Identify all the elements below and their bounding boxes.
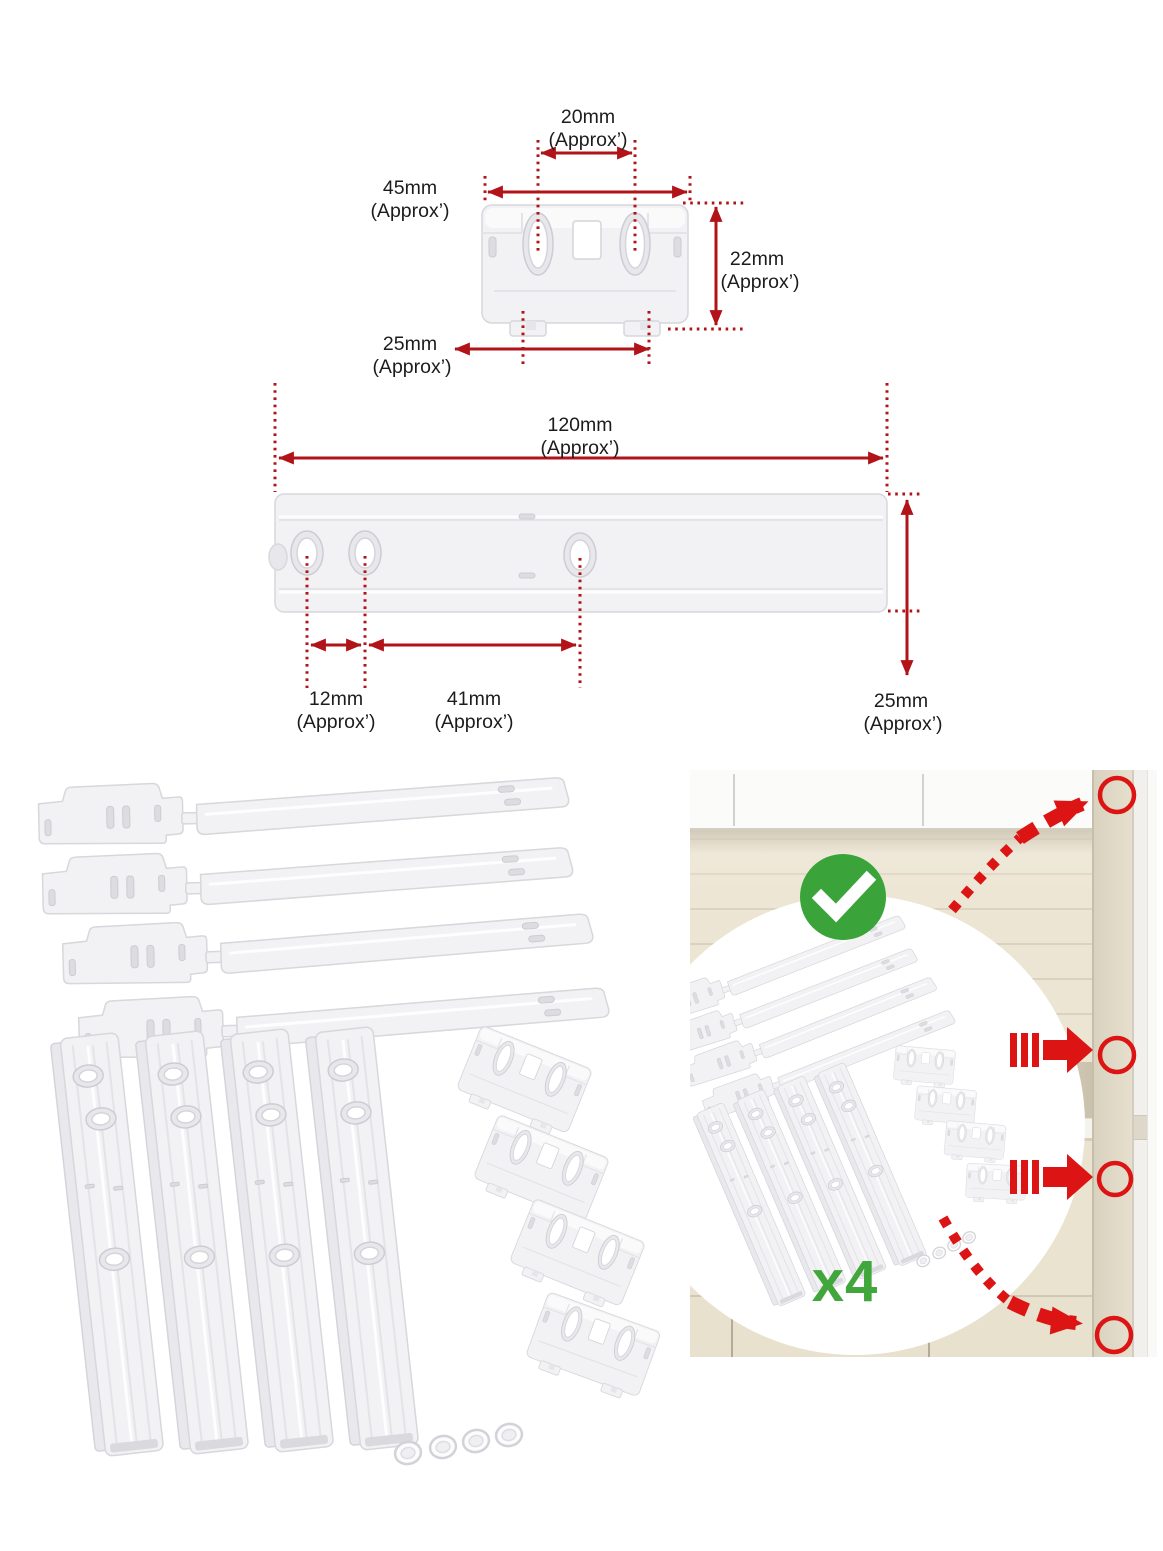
dim-value: 12mm xyxy=(309,688,363,710)
rail-dimension-diagram: 120mm (Approx’) 12mm (Approx’) 41mm (App… xyxy=(269,383,943,735)
curved-arrow-icon xyxy=(952,804,1082,910)
product-dimension-sheet: 20mm (Approx’) 45mm (Approx’) 22mm (Appr… xyxy=(0,0,1163,1551)
dim-value: 20mm xyxy=(561,106,615,128)
dim-approx: (Approx’) xyxy=(540,437,619,459)
dim-value: 120mm xyxy=(547,414,612,436)
corner-marker-circle xyxy=(1099,1163,1131,1195)
dim-value: 25mm xyxy=(383,333,437,355)
straight-arrow-icon xyxy=(1010,1027,1093,1073)
dim-approx: (Approx’) xyxy=(863,713,942,735)
bracket-dimension-diagram: 20mm (Approx’) 45mm (Approx’) 22mm (Appr… xyxy=(370,106,799,378)
dim-value: 45mm xyxy=(383,177,437,199)
curved-arrow-icon xyxy=(943,1218,1076,1323)
installation-markers xyxy=(690,770,1157,1357)
corner-marker-circle xyxy=(1097,1318,1131,1352)
straight-arrow-icon xyxy=(1010,1154,1093,1200)
corner-marker-circle xyxy=(1100,778,1134,812)
dim-rail-length: 120mm (Approx’) xyxy=(275,383,887,492)
dim-approx: (Approx’) xyxy=(372,356,451,378)
corner-marker-circle xyxy=(1100,1038,1134,1072)
dim-value: 25mm xyxy=(874,690,928,712)
dim-value: 22mm xyxy=(730,248,784,270)
dim-approx: (Approx’) xyxy=(296,711,375,733)
dim-approx: (Approx’) xyxy=(370,200,449,222)
dimension-diagrams: 20mm (Approx’) 45mm (Approx’) 22mm (Appr… xyxy=(0,0,1163,760)
rail-drawing xyxy=(269,494,887,612)
kitchen-photo: x4 xyxy=(690,770,1157,1357)
dim-approx: (Approx’) xyxy=(548,129,627,151)
dim-value: 41mm xyxy=(447,688,501,710)
kit-contents-image xyxy=(20,770,690,1520)
dim-approx: (Approx’) xyxy=(434,711,513,733)
dim-approx: (Approx’) xyxy=(720,271,799,293)
